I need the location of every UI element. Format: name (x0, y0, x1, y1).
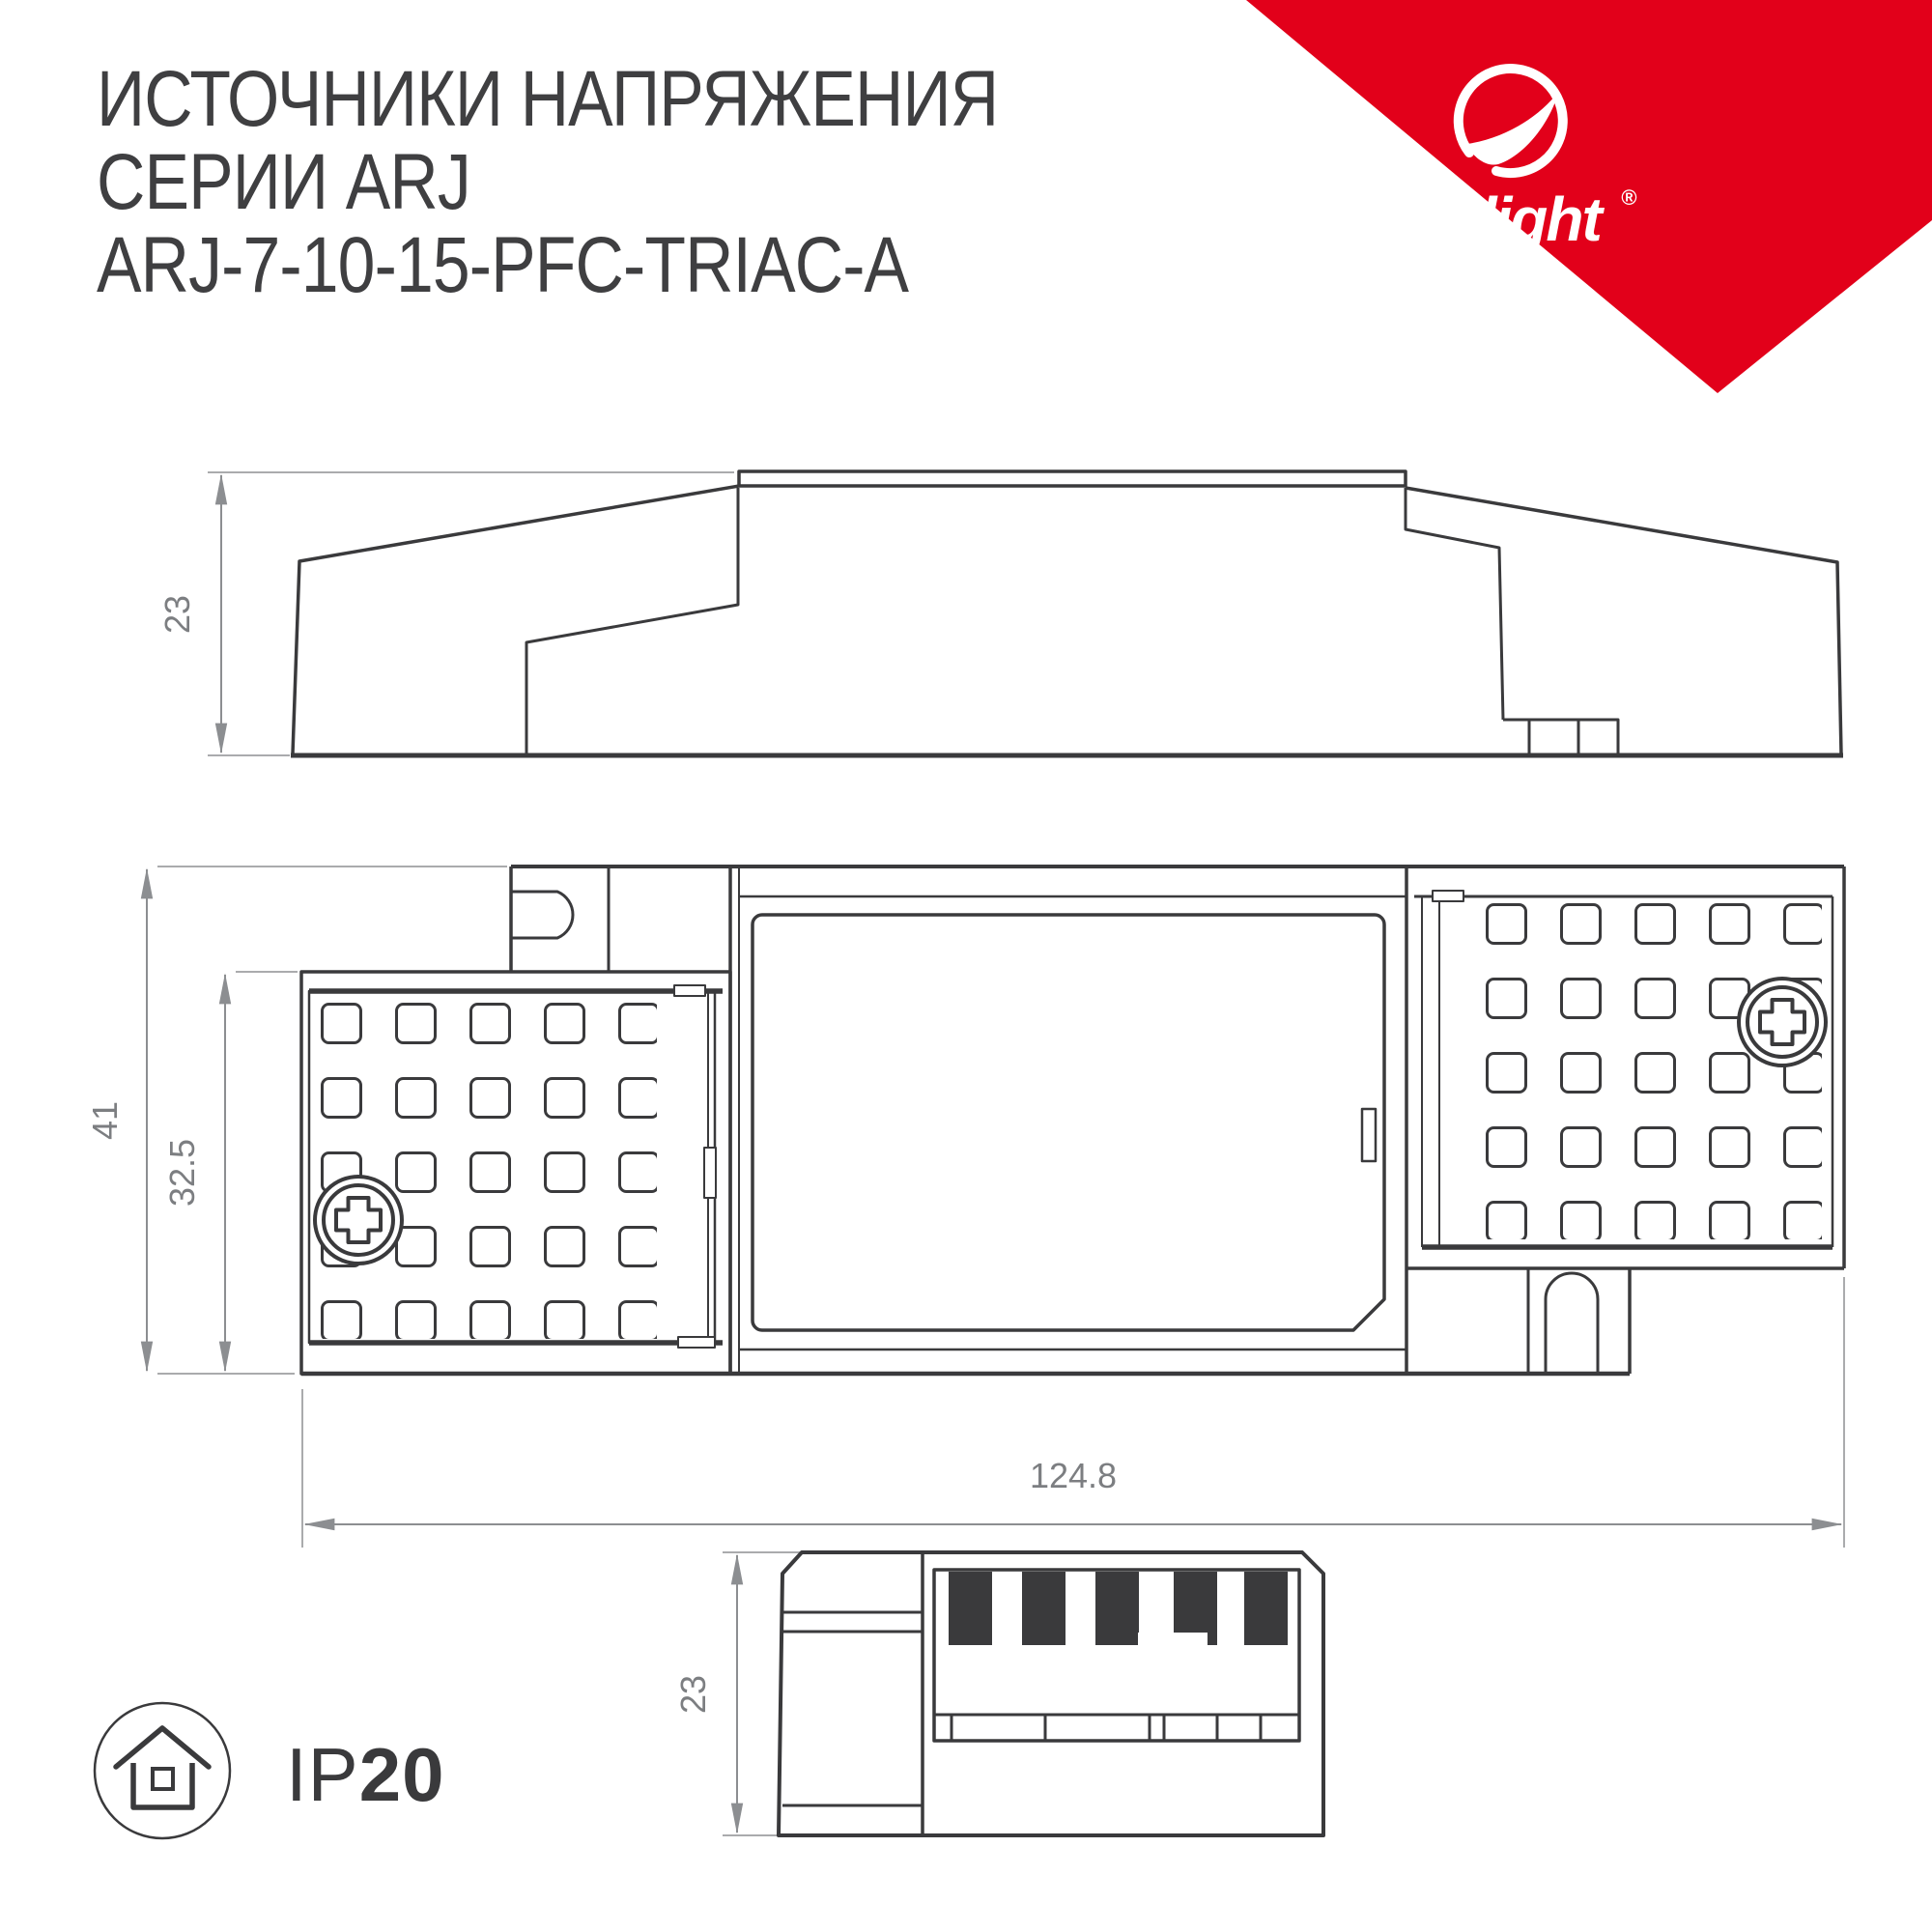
front-body (301, 867, 1844, 1374)
ip-badge (95, 1703, 230, 1838)
mounting-slot-bottom (1546, 1273, 1598, 1374)
terminal-end-blocks (1503, 720, 1618, 753)
ip-rating-prefix: IP (286, 1732, 359, 1817)
latch-top-right-panel (1433, 891, 1463, 901)
right-vent-panel (1406, 867, 1844, 1268)
terminal-block (934, 1570, 1299, 1741)
dim-box-height: 32.5 (162, 972, 298, 1371)
page: ИСТОЧНИКИ НАПРЯЖЕНИЯ СЕРИИ ARJ ARJ-7-10-… (0, 0, 1932, 1932)
dim-side-height: 23 (157, 472, 734, 755)
latch-side-left-panel (704, 1148, 716, 1198)
end-body (779, 1552, 1323, 1835)
central-cover (753, 915, 1384, 1330)
vent-grid-left (321, 1003, 657, 1339)
side-view-outline (291, 471, 1843, 755)
side-view: 23 (157, 471, 1843, 755)
dim-width-label: 124.8 (1030, 1456, 1117, 1495)
house-in-circle-icon (95, 1703, 230, 1838)
latch-top-left-panel (674, 985, 705, 996)
ip-rating: IP20 (286, 1731, 444, 1819)
screw-right-icon (1739, 979, 1826, 1065)
mounting-slot-top (511, 892, 573, 938)
central-section (730, 867, 1406, 1374)
dim-total-height-label: 41 (85, 1101, 125, 1140)
dim-end-height-label: 23 (673, 1675, 713, 1714)
ip-rating-value: 20 (359, 1732, 445, 1817)
end-view: 23 (673, 1552, 1323, 1835)
left-vent-panel (301, 867, 739, 1374)
front-view: 41 32.5 124.8 (85, 867, 1844, 1548)
latch-central-cover (1362, 1109, 1376, 1161)
latch-bottom-left-panel (678, 1337, 715, 1348)
terminal-contacts (936, 1572, 1297, 1645)
technical-drawing: 23 41 (0, 0, 1932, 1932)
screw-left-icon (315, 1177, 402, 1264)
dim-box-height-label: 32.5 (162, 1139, 202, 1207)
dim-side-height-label: 23 (157, 595, 197, 634)
vent-grid-right (1486, 903, 1822, 1239)
